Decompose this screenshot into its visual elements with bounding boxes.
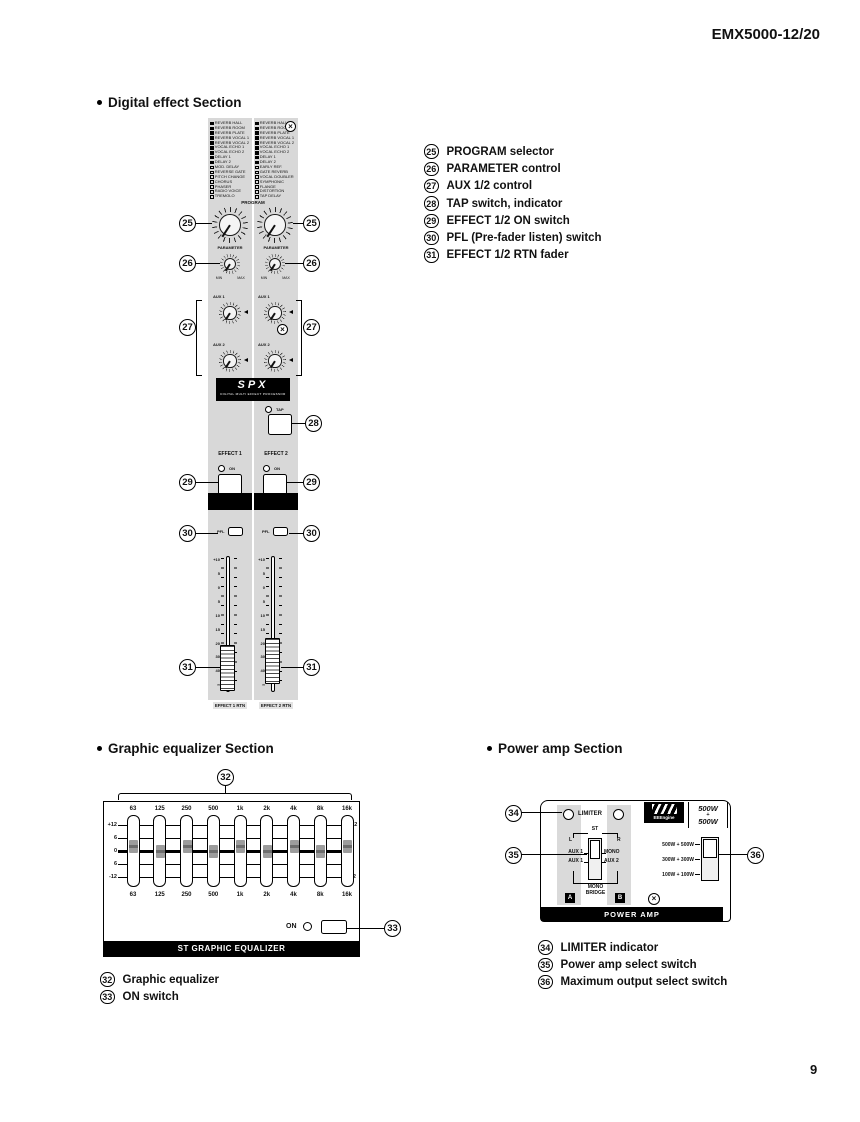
- tick: [584, 862, 588, 863]
- effect1-label: EFFECT 1: [208, 451, 252, 457]
- section-heading-text: Digital effect Section: [108, 95, 242, 110]
- fader-scale-label: 0: [218, 586, 220, 591]
- fader-scale-label: 15: [261, 628, 265, 633]
- program-name: TAP DELAY: [260, 194, 281, 199]
- section-heading-power-amp: Power amp Section: [487, 741, 623, 756]
- eq-band: 1k 1k: [228, 805, 252, 899]
- callout-number: 34: [538, 940, 553, 955]
- output-option-label: 100W + 100W: [662, 867, 694, 882]
- fader-scale-label: 5: [263, 600, 265, 605]
- digital-effect-callout-list: 25PROGRAM selector26PARAMETER control27A…: [424, 143, 602, 264]
- eeengine-logo-stripes: [652, 804, 677, 814]
- program-number-marker: [210, 190, 214, 194]
- callout-35: 35: [505, 847, 522, 864]
- eq-scale-label: 6: [114, 835, 117, 841]
- program-number-marker: [255, 127, 259, 131]
- program-number-marker: [255, 151, 259, 155]
- fader-scale-effect2: +105051015203040∞: [254, 558, 265, 688]
- crossed-circle-icon: ×: [277, 324, 288, 335]
- pfl-switch-effect1: [228, 527, 243, 536]
- program-number-marker: [255, 161, 259, 165]
- eq-frequency-label-bottom: 8k: [317, 891, 324, 899]
- program-number-marker: [210, 161, 214, 165]
- program-number-marker: [210, 131, 214, 135]
- eq-scale-label: -12: [109, 874, 117, 880]
- eq-band: 500 500: [201, 805, 225, 899]
- fader-scale-label: 5: [263, 572, 265, 577]
- leader-line: [196, 667, 221, 668]
- eq-slider-handle: [290, 840, 299, 853]
- power-rating: 500W + 500W: [688, 802, 728, 828]
- effect1-rtn-label-wrap: EFFECT 1 RTN: [208, 694, 252, 712]
- tick: [602, 862, 606, 863]
- leader-line: [521, 854, 587, 855]
- fader-scale-label: 10: [261, 614, 265, 619]
- crossed-circle-icon: ×: [285, 121, 296, 132]
- leader-line: [196, 482, 218, 483]
- eq-slider-slot: [153, 815, 166, 887]
- callout-27: 27: [179, 319, 196, 336]
- callout-label: PFL (Pre-fader listen) switch: [447, 232, 602, 244]
- callout-number: 26: [424, 162, 439, 177]
- eq-slider-handle: [156, 845, 165, 858]
- leader-line: [293, 223, 303, 224]
- mono-option-label: MONO: [604, 849, 634, 855]
- max-label: MAX: [234, 276, 248, 280]
- program-number-marker: [210, 180, 214, 184]
- eq-slider-slot: [341, 815, 354, 887]
- leader-line: [292, 423, 305, 424]
- eq-slider-slot: [127, 815, 140, 887]
- leader-line: [287, 482, 303, 483]
- callout-row: 26PARAMETER control: [424, 160, 602, 177]
- leader-line: [285, 263, 303, 264]
- aux1-label-1: AUX 1: [213, 294, 225, 299]
- eq-frequency-label-top: 4k: [290, 805, 297, 813]
- callout-row: 27AUX 1/2 control: [424, 178, 602, 195]
- nominal-marker-icon: [244, 310, 248, 314]
- nominal-marker-icon: [289, 358, 293, 362]
- program-number-marker: [255, 185, 259, 189]
- bracket: [296, 300, 302, 376]
- bullet-icon: [97, 100, 102, 105]
- eq-band: 250 250: [175, 805, 199, 899]
- eq-band-row: 63 63 125 125 250 250 500: [121, 805, 359, 899]
- eq-band: 63 63: [121, 805, 145, 899]
- bullet-icon: [487, 746, 492, 751]
- eq-frequency-label-bottom: 1k: [237, 891, 244, 899]
- callout-28: 28: [305, 415, 322, 432]
- page-header-model: EMX5000-12/20: [520, 26, 820, 43]
- power-amp-panel: LIMITER ST L R AUX 1 AUX 1 MONO AUX 2 MO…: [540, 800, 731, 922]
- eq-slider-slot: [180, 815, 193, 887]
- program-number-marker: [210, 156, 214, 160]
- callout-label: Graphic equalizer: [123, 974, 220, 986]
- spx-logo-text: SPX: [216, 378, 290, 392]
- on-label: ON: [229, 466, 235, 471]
- eq-slider-handle: [209, 845, 218, 858]
- leader-line: [346, 928, 384, 929]
- program-number-marker: [255, 180, 259, 184]
- pfl-switch-effect2: [273, 527, 288, 536]
- bridge-bracket: [617, 871, 618, 883]
- callout-number: 31: [424, 248, 439, 263]
- eq-frequency-label-top: 16k: [342, 805, 352, 813]
- nominal-marker-icon: [244, 358, 248, 362]
- aux1-knob-effect2: [264, 302, 286, 324]
- section-heading-digital-effect: Digital effect Section: [97, 95, 242, 110]
- callout-36: 36: [747, 847, 764, 864]
- st-label: ST: [588, 826, 602, 832]
- effect1-on-led: [218, 465, 225, 472]
- callout-31: 31: [179, 659, 196, 676]
- power-amp-title-bar: POWER AMP: [541, 907, 723, 921]
- eeengine-logo-text: EEEngine: [644, 815, 684, 820]
- program-number-marker: [210, 151, 214, 155]
- parameter-knob-effect1: [220, 254, 240, 274]
- eq-frequency-label-bottom: 16k: [342, 891, 352, 899]
- leader-line: [281, 667, 303, 668]
- divider-bar: [254, 493, 298, 510]
- program-knob-effect2: [257, 207, 293, 243]
- effect2-rtn-label: EFFECT 2 RTN: [259, 702, 293, 709]
- graphic-equalizer-panel: +12606-12 +12606-12 63 63 125 125 25: [103, 801, 360, 957]
- tap-indicator-led: [265, 406, 272, 413]
- program-number-marker: [210, 122, 214, 126]
- eq-band: 8k 8k: [308, 805, 332, 899]
- callout-label: EFFECT 1/2 ON switch: [447, 215, 570, 227]
- callout-row: 28TAP switch, indicator: [424, 195, 602, 212]
- program-number-marker: [210, 146, 214, 150]
- eq-slider-handle: [183, 840, 192, 853]
- eq-band: 16k 16k: [335, 805, 359, 899]
- eq-band: 4k 4k: [282, 805, 306, 899]
- callout-row: 31EFFECT 1/2 RTN fader: [424, 247, 602, 264]
- on-label: ON: [274, 466, 280, 471]
- leader-line: [289, 533, 303, 534]
- leader-line: [521, 812, 562, 813]
- callout-number: 28: [424, 196, 439, 211]
- program-number-marker: [255, 131, 259, 135]
- effect1-on-switch: [218, 474, 242, 495]
- callout-number: 30: [424, 231, 439, 246]
- limiter-led-b: [613, 809, 624, 820]
- eq-scale-label: +12: [108, 822, 117, 828]
- eq-scale-label: 6: [114, 861, 117, 867]
- callout-label: TAP switch, indicator: [447, 198, 563, 210]
- mono-bridge-label: MONO BRIDGE: [577, 885, 614, 896]
- pfl-label: PFL: [217, 529, 225, 534]
- eq-frequency-label-top: 2k: [263, 805, 270, 813]
- max-output-select-switch-handle: [703, 839, 717, 858]
- spx-logo-subtext: DIGITAL MULTI EFFECT PROCESSOR: [216, 392, 290, 396]
- nominal-marker-icon: [289, 310, 293, 314]
- program-name: TREMOLO: [215, 194, 235, 199]
- effect2-rtn-fader: [265, 638, 280, 684]
- callout-row: 25PROGRAM selector: [424, 143, 602, 160]
- tick: [602, 853, 606, 854]
- callout-number: 25: [424, 144, 439, 159]
- eq-frequency-label-top: 500: [208, 805, 218, 813]
- program-number-marker: [255, 146, 259, 150]
- program-number-marker: [210, 195, 214, 199]
- eq-title-bar: ST GRAPHIC EQUALIZER: [104, 941, 359, 956]
- power-amp-select-switch-handle: [590, 840, 600, 859]
- section-heading-graphic-eq: Graphic equalizer Section: [97, 741, 274, 756]
- callout-32: 32: [217, 769, 234, 786]
- program-number-marker: [255, 171, 259, 175]
- leader-line: [718, 854, 747, 855]
- output-option-label: 500W + 500W: [662, 837, 694, 852]
- tap-label: TAP: [276, 407, 284, 412]
- eq-slider-slot: [207, 815, 220, 887]
- callout-row: 34LIMITER indicator: [538, 939, 727, 956]
- eq-frequency-label-bottom: 2k: [263, 891, 270, 899]
- leader-line: [196, 263, 220, 264]
- fader-scale-effect1: +105051015203040∞: [209, 558, 220, 688]
- tap-switch: [268, 414, 292, 435]
- callout-label: ON switch: [123, 991, 179, 1003]
- bullet-icon: [97, 746, 102, 751]
- callout-row: 35Power amp select switch: [538, 956, 727, 973]
- eq-slider-handle: [263, 845, 272, 858]
- limiter-label: LIMITER: [576, 811, 604, 817]
- fader-scale-label: 10: [216, 614, 220, 619]
- effect1-rtn-label: EFFECT 1 RTN: [213, 702, 247, 709]
- fader-scale-label: +10: [258, 558, 265, 563]
- callout-row: 29EFFECT 1/2 ON switch: [424, 212, 602, 229]
- eq-band: 125 125: [148, 805, 172, 899]
- program-list-item: TREMOLO: [210, 194, 251, 199]
- effect2-on-switch: [263, 474, 287, 495]
- callout-label: PROGRAM selector: [447, 146, 554, 158]
- fader-scale-label: +10: [213, 558, 220, 563]
- bracket: [118, 793, 352, 800]
- eq-band: 2k 2k: [255, 805, 279, 899]
- manual-page: EMX5000-12/20 Digital effect Section REV…: [0, 0, 860, 1122]
- callout-label: LIMITER indicator: [561, 942, 659, 954]
- eq-frequency-label-top: 250: [181, 805, 191, 813]
- eq-slider-slot: [287, 815, 300, 887]
- callout-26: 26: [303, 255, 320, 272]
- st-bracket: [602, 833, 618, 834]
- bridge-bracket: [573, 871, 574, 883]
- page-number: 9: [810, 1062, 817, 1077]
- st-bracket: [573, 833, 588, 834]
- leader-line: [196, 223, 212, 224]
- tick: [695, 859, 700, 860]
- limiter-led-a: [563, 809, 574, 820]
- aux2-knob-effect2: [264, 350, 286, 372]
- program-number-marker: [210, 127, 214, 131]
- program-number-marker: [255, 175, 259, 179]
- graphic-eq-callout-list: 32Graphic equalizer33ON switch: [100, 971, 219, 1006]
- eq-frequency-label-bottom: 125: [155, 891, 165, 899]
- pfl-label: PFL: [262, 529, 270, 534]
- parameter-knob-effect2: [265, 254, 285, 274]
- callout-label: AUX 1/2 control: [447, 180, 533, 192]
- channel-b-badge: B: [615, 893, 625, 903]
- program-list-item: TAP DELAY: [255, 194, 296, 199]
- eq-frequency-label-bottom: 500: [208, 891, 218, 899]
- program-number-marker: [210, 166, 214, 170]
- callout-25: 25: [179, 215, 196, 232]
- callout-29: 29: [179, 474, 196, 491]
- eq-slider-handle: [343, 840, 352, 853]
- min-label: MIN: [212, 276, 226, 280]
- digital-effect-panel: REVERB HALLREVERB ROOMREVERB PLATEREVERB…: [208, 118, 298, 700]
- aux1-label-2: AUX 1: [258, 294, 270, 299]
- min-label: MIN: [257, 276, 271, 280]
- callout-number: 35: [538, 958, 553, 973]
- mono-bridge-line2: BRIDGE: [577, 891, 614, 897]
- effect2-rtn-label-wrap: EFFECT 2 RTN: [254, 694, 298, 712]
- eq-frequency-label-bottom: 250: [181, 891, 191, 899]
- callout-number: 33: [100, 990, 115, 1005]
- spx-logo: SPX DIGITAL MULTI EFFECT PROCESSOR: [216, 378, 290, 401]
- program-number-marker: [255, 190, 259, 194]
- program-number-marker: [255, 166, 259, 170]
- st-bracket: [573, 833, 574, 838]
- program-number-marker: [210, 136, 214, 140]
- callout-number: 36: [538, 975, 553, 990]
- aux2-label-1: AUX 2: [213, 342, 225, 347]
- program-number-marker: [210, 185, 214, 189]
- aux1-knob-effect1: [219, 302, 241, 324]
- program-number-marker: [210, 175, 214, 179]
- fader-scale-label: 5: [218, 600, 220, 605]
- eq-on-switch: [321, 920, 347, 934]
- crossed-circle-icon: ×: [648, 893, 660, 905]
- channel-a-badge: A: [565, 893, 575, 903]
- eq-slider-slot: [234, 815, 247, 887]
- eq-frequency-label-bottom: 63: [130, 891, 137, 899]
- eq-scale-label: 0: [114, 848, 117, 854]
- effect2-label: EFFECT 2: [254, 451, 298, 457]
- parameter-label-1: PARAMETER: [208, 245, 252, 250]
- callout-label: PARAMETER control: [447, 163, 561, 175]
- tick: [695, 844, 700, 845]
- callout-label: Power amp select switch: [561, 959, 697, 971]
- callout-number: 27: [424, 179, 439, 194]
- callout-label: Maximum output select switch: [561, 976, 728, 988]
- callout-row: 33ON switch: [100, 988, 219, 1005]
- program-number-marker: [210, 141, 214, 145]
- program-number-marker: [255, 141, 259, 145]
- eq-frequency-label-top: 125: [155, 805, 165, 813]
- callout-33: 33: [384, 920, 401, 937]
- fader-scale-label: ∞: [262, 683, 265, 688]
- program-number-marker: [255, 195, 259, 199]
- bracket: [196, 300, 202, 376]
- eq-slider-handle: [316, 845, 325, 858]
- program-list-effect1: REVERB HALLREVERB ROOMREVERB PLATEREVERB…: [210, 121, 251, 199]
- parameter-label-2: PARAMETER: [254, 245, 298, 250]
- eq-slider-handle: [236, 840, 245, 853]
- effect2-on-led: [263, 465, 270, 472]
- rating-watts-bottom: 500W: [698, 818, 718, 826]
- eq-slider-handle: [129, 840, 138, 853]
- right-channel-label: R: [617, 837, 621, 843]
- callout-label: EFFECT 1/2 RTN fader: [447, 249, 569, 261]
- program-label: PROGRAM: [208, 200, 298, 205]
- program-number-marker: [255, 122, 259, 126]
- program-number-marker: [255, 136, 259, 140]
- callout-31: 31: [303, 659, 320, 676]
- eq-scale-left: +12606-12: [105, 822, 117, 880]
- program-number-marker: [255, 156, 259, 160]
- callout-26: 26: [179, 255, 196, 272]
- fader-scale-label: 0: [263, 586, 265, 591]
- callout-25: 25: [303, 215, 320, 232]
- output-option-list: 500W + 500W300W + 300W100W + 100W: [636, 837, 694, 882]
- divider-bar: [208, 493, 252, 510]
- program-knob-effect1: [212, 207, 248, 243]
- fader-scale-label: 5: [218, 572, 220, 577]
- callout-30: 30: [303, 525, 320, 542]
- leader-line: [225, 786, 226, 793]
- callout-29: 29: [303, 474, 320, 491]
- program-number-marker: [210, 171, 214, 175]
- eq-frequency-label-bottom: 4k: [290, 891, 297, 899]
- eeengine-logo: EEEngine: [644, 802, 684, 823]
- aux2-label-2: AUX 2: [258, 342, 270, 347]
- eq-frequency-label-top: 1k: [237, 805, 244, 813]
- callout-number: 29: [424, 214, 439, 229]
- program-list-effect2: REVERB HALLREVERB ROOMREVERB PLATEREVERB…: [255, 121, 296, 199]
- eq-slider-slot: [260, 815, 273, 887]
- fader-scale-label: 15: [216, 628, 220, 633]
- callout-27: 27: [303, 319, 320, 336]
- eq-frequency-label-top: 8k: [317, 805, 324, 813]
- callout-row: 30PFL (Pre-fader listen) switch: [424, 229, 602, 246]
- aux1-option-label: AUX 1: [553, 858, 583, 864]
- left-channel-label: L: [569, 837, 572, 843]
- max-label: MAX: [279, 276, 293, 280]
- aux2-knob-effect1: [219, 350, 241, 372]
- aux2-option-label: AUX 2: [604, 858, 634, 864]
- callout-row: 32Graphic equalizer: [100, 971, 219, 988]
- leader-line: [196, 533, 218, 534]
- section-heading-text: Graphic equalizer Section: [108, 741, 274, 756]
- eq-slider-slot: [314, 815, 327, 887]
- eq-on-led: [303, 922, 312, 931]
- callout-row: 36Maximum output select switch: [538, 974, 727, 991]
- eq-frequency-label-top: 63: [130, 805, 137, 813]
- power-amp-callout-list: 34LIMITER indicator35Power amp select sw…: [538, 939, 727, 991]
- section-heading-text: Power amp Section: [498, 741, 623, 756]
- effect1-rtn-fader: [220, 645, 235, 691]
- eq-on-label: ON: [286, 923, 297, 930]
- callout-30: 30: [179, 525, 196, 542]
- output-option-label: 300W + 300W: [662, 852, 694, 867]
- callout-number: 32: [100, 972, 115, 987]
- callout-34: 34: [505, 805, 522, 822]
- tick: [695, 874, 700, 875]
